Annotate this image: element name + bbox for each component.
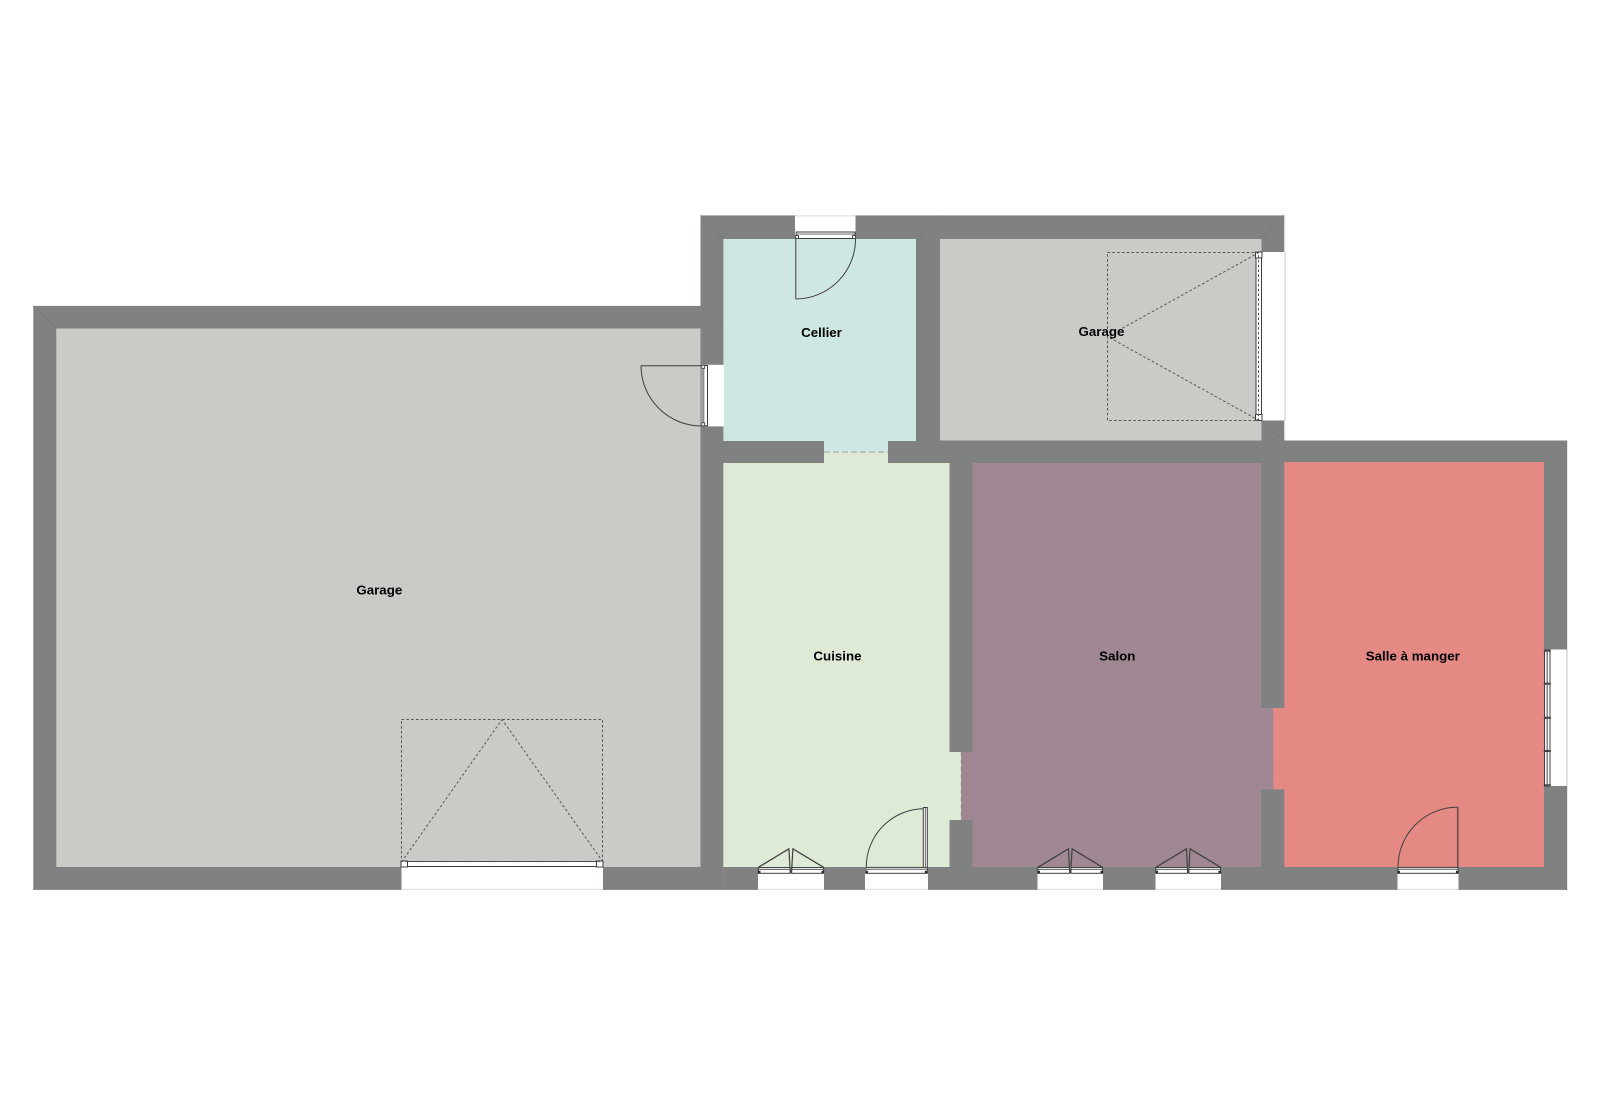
svg-text:Garage: Garage bbox=[356, 583, 402, 598]
svg-text:Salle à manger: Salle à manger bbox=[1366, 649, 1460, 664]
svg-text:Salon: Salon bbox=[1099, 649, 1135, 664]
svg-text:Garage: Garage bbox=[1079, 324, 1125, 339]
svg-text:Cellier: Cellier bbox=[801, 325, 842, 340]
svg-text:Cuisine: Cuisine bbox=[813, 649, 861, 664]
